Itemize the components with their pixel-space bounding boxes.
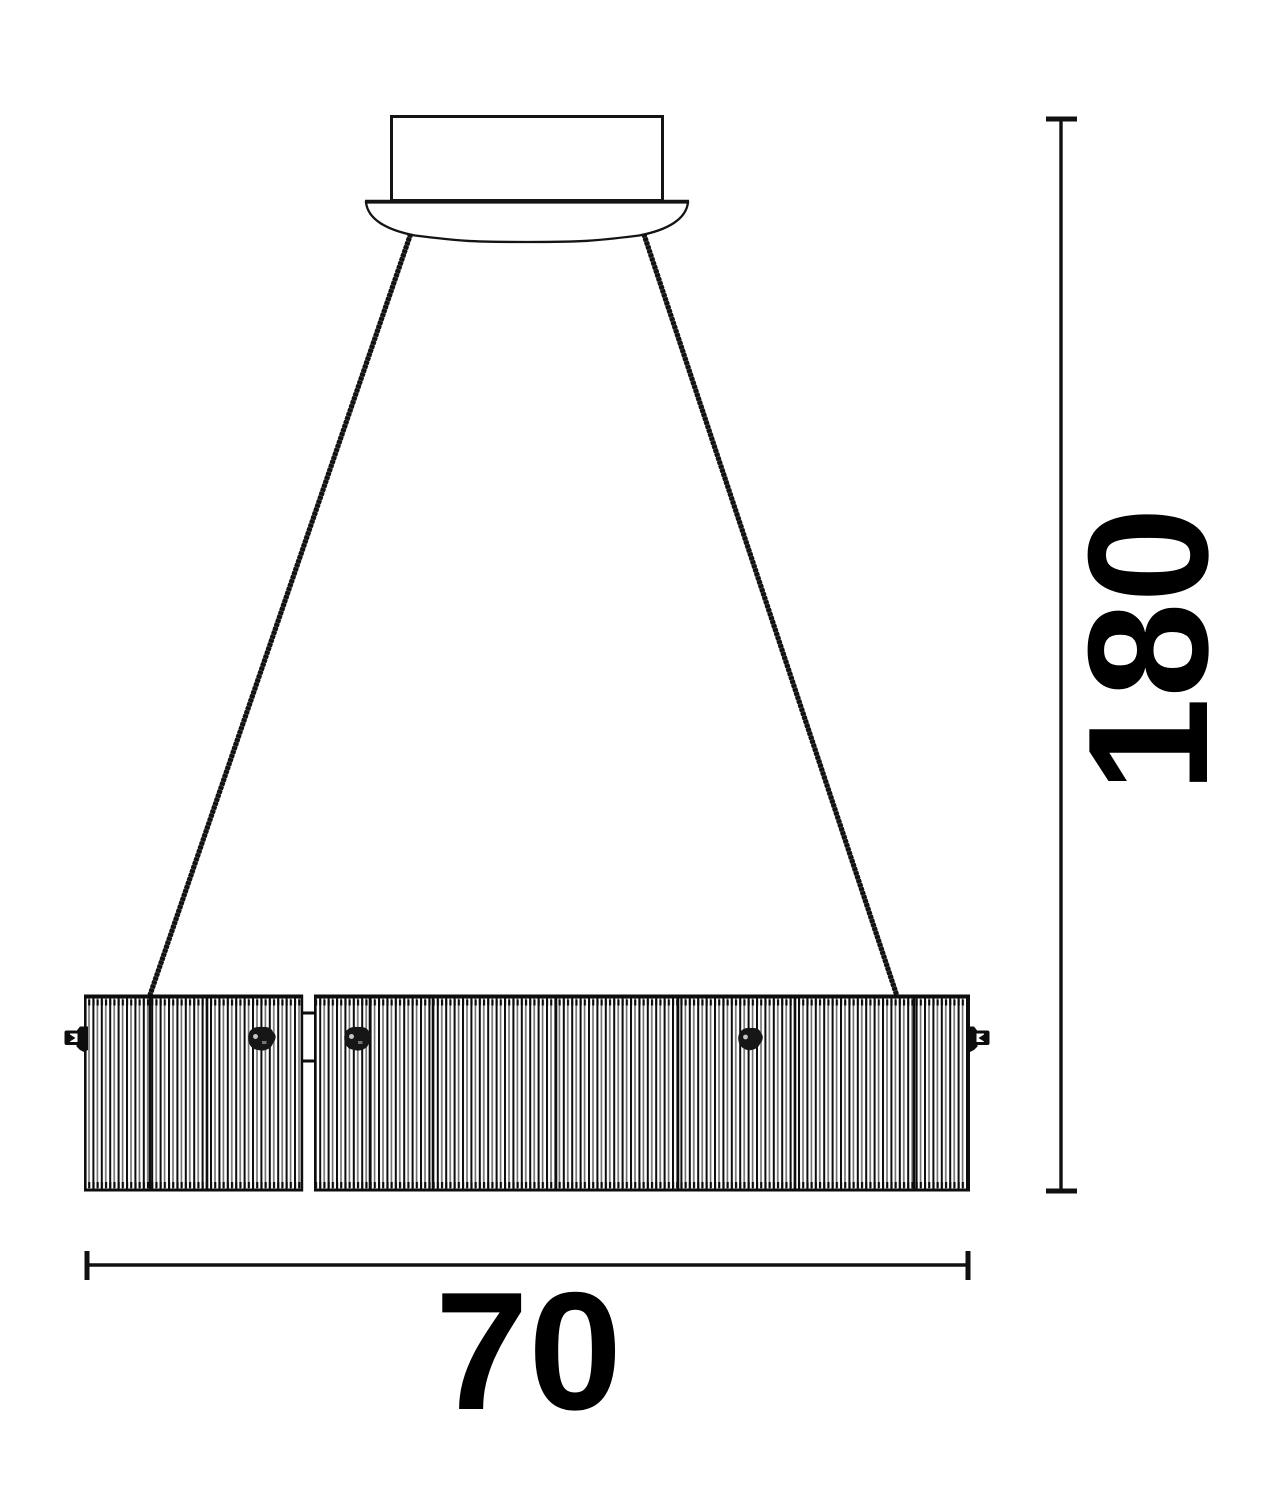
svg-text:180: 180 <box>1053 507 1244 792</box>
svg-text:70: 70 <box>435 1257 622 1445</box>
